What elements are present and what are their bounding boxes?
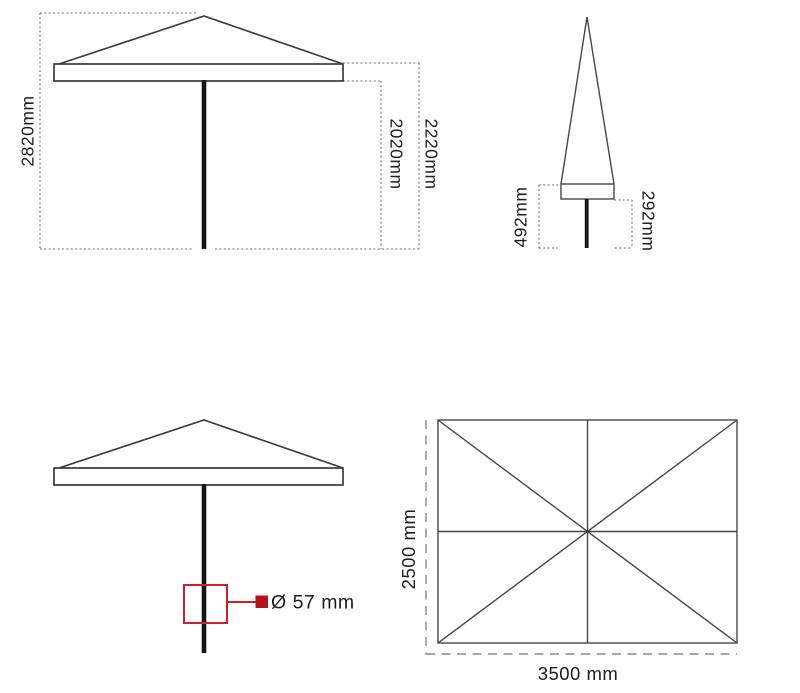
canopy-ribs bbox=[438, 420, 737, 643]
dim-label-under-canopy-height: 2020mm bbox=[386, 118, 407, 189]
pole bbox=[202, 80, 207, 249]
open-umbrella-side-view bbox=[40, 13, 419, 249]
pole-diameter-detail-view bbox=[54, 420, 343, 653]
canopy-roof-outline bbox=[56, 16, 343, 65]
umbrella-dimension-drawing: 2820mm 2020mm 2220mm 492mm 292mm Ø 57 mm… bbox=[0, 0, 800, 693]
canopy-roof-outline-2 bbox=[56, 420, 343, 469]
height-dimension-lines bbox=[40, 13, 419, 249]
canopy-band-2 bbox=[54, 468, 343, 485]
closed-canopy-cone bbox=[561, 17, 614, 184]
closed-canopy-band bbox=[561, 184, 614, 199]
dim-label-canopy-depth: 2500 mm bbox=[398, 509, 420, 590]
pole-2 bbox=[202, 484, 207, 653]
closed-pole bbox=[585, 199, 589, 248]
dim-label-canopy-width: 3500 mm bbox=[538, 663, 619, 685]
dim-bracket-492 bbox=[539, 185, 560, 248]
dim-label-closed-canopy-height: 492mm bbox=[511, 187, 532, 248]
dim-label-total-height: 2820mm bbox=[18, 95, 39, 166]
dim-extension-2020 bbox=[343, 81, 381, 249]
dim-label-pole-diameter: Ø 57 mm bbox=[271, 592, 355, 615]
canopy-band bbox=[54, 64, 343, 81]
canopy-top-view bbox=[426, 420, 737, 655]
dim-label-pole-exposed-height: 292mm bbox=[638, 191, 659, 252]
dim-bracket-292 bbox=[614, 200, 632, 248]
closed-umbrella-side-view bbox=[539, 17, 632, 248]
red-marker-square bbox=[256, 596, 269, 609]
dim-label-canopy-edge-height: 2220mm bbox=[421, 118, 442, 189]
